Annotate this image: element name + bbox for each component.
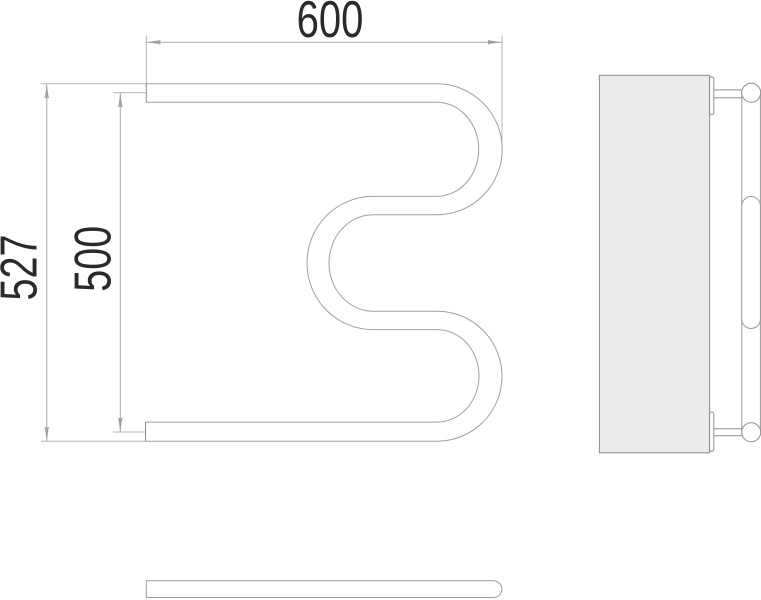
svg-text:500: 500 [63, 226, 122, 292]
svg-text:527: 527 [0, 235, 48, 301]
svg-text:600: 600 [297, 0, 364, 48]
